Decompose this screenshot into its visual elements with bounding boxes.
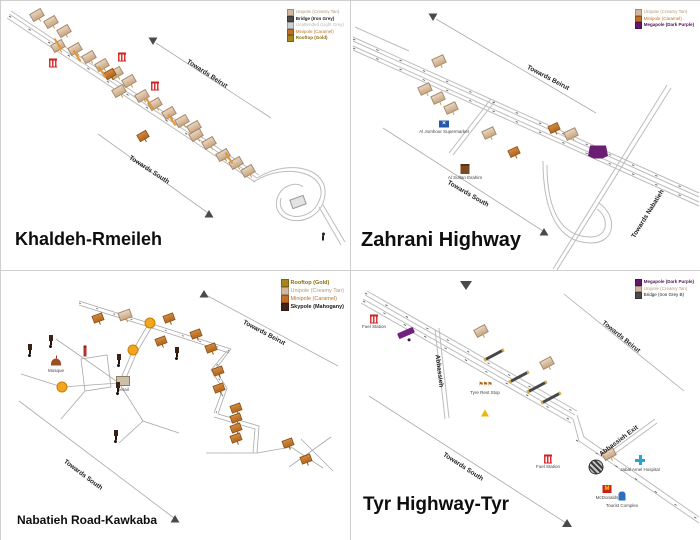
marker-label: Al Jomhour Supermarket [419,129,469,134]
minipole-marker [299,453,312,464]
megapole-h-marker [397,327,415,339]
marker-label: Tyre Rest Stop [470,390,500,395]
unipole-marker [240,164,256,178]
unipole-marker [443,101,459,115]
station-marker [118,53,126,62]
unipole-marker [56,24,72,38]
panel-tyr-highway-tyr: Fuel StationFuel Station⚑⚑⚑Tyre Rest Sto… [351,271,700,540]
legend-label: Minipole (Caramel) [291,295,337,303]
tourist-marker [619,492,626,501]
marker-label: McDonalds [596,495,619,500]
legend-label: Megapole (Dark Purple) [644,22,694,29]
minipole-marker [507,146,520,158]
marker-label: Fuel Station [362,324,386,329]
minipole-marker [154,335,167,346]
roundabout-orange-marker [57,382,68,393]
panel-title: Nabatieh Road-Kawkaba [17,513,157,527]
bridge-marker [484,349,505,362]
legend-label: Unipole (Creamy Tan) [291,287,344,295]
panel-title: Tyr Highway-Tyr [363,494,509,516]
direction-label: Towards Nabatieh [630,189,665,240]
shop-marker [461,164,470,174]
unipole-marker [563,127,579,141]
legend-label: Rooftop (Gold) [296,35,328,42]
legend-swatch [635,292,642,299]
legend-item: Megapole (Dark Purple) [635,22,694,29]
minipole-marker [229,432,242,443]
legend: Rooftop (Gold)Unipole (Creamy Tan)Minipo… [281,279,344,311]
flags-marker: ⚑⚑⚑ [478,382,491,388]
legend-swatch [281,295,289,303]
unipole-marker [431,54,447,68]
direction-label: Abbassieh [434,354,445,387]
skypole-marker [114,430,118,436]
legend-item: Skypole (Mahogany) [281,303,344,311]
legend-label: Rooftop (Gold) [291,279,330,287]
station-marker [370,315,378,324]
legend-swatch [635,22,642,29]
legend-item: Rooftop (Gold) [287,35,344,42]
flags-glyph: ⚑⚑⚑ [478,382,491,388]
marker-label: Tourist Complex [606,503,638,508]
direction-label: Towards Beirut [601,320,642,355]
direction-label: Towards Beirut [242,319,287,347]
supermarket-marker: ✕ [439,121,449,128]
minipole-marker [212,382,225,393]
roundabout-orange-marker [128,345,139,356]
hospital-marker [635,455,645,465]
supermarket-glyph: ✕ [439,121,449,128]
marker-label: Al Sultan Ibrahim [448,175,482,180]
marker-layer: MosqueSerailTowards BeirutTowards South [1,271,350,540]
legend-item: Unipole (Creamy Tan) [281,287,344,295]
direction-label: Towards Beirut [185,58,228,89]
unipole-marker [29,8,45,22]
legend: Unipole (Creamy Tan)Minipole (Caramel)Me… [635,9,694,29]
unipole-marker [539,356,555,370]
direction-label: Towards South [128,154,171,185]
unipole-marker [81,50,97,64]
direction-label: Towards South [446,179,490,208]
unipole-marker [430,91,446,105]
unipole-marker [201,136,217,150]
legend: Megapole (Dark Purple)Unipole (Creamy Ta… [635,279,694,299]
unipole-marker [43,15,59,29]
legend-label: Skypole (Mahogany) [291,303,344,311]
warning-marker [481,410,489,417]
minipole-marker [229,422,242,433]
mosque-marker [51,359,61,366]
skypole-marker [28,344,32,350]
panel-nabatieh-road-kawkaba: MosqueSerailTowards BeirutTowards South … [1,271,350,540]
panel-khaldeh-rmeileh: Towards BeirutTowards South Unipole (Cre… [1,1,350,270]
skypole-marker [116,382,120,388]
station-marker [151,82,159,91]
roundabout-orange-marker [145,318,156,329]
unipole-marker [117,309,132,322]
megapole-marker [588,146,608,159]
minipole-marker [189,328,202,339]
mcdonalds-glyph: M [603,485,612,493]
unipole-marker [473,324,489,338]
legend-swatch [287,35,294,42]
bridge-marker [541,392,562,405]
panel-title: Zahrani Highway [361,229,521,252]
minipole-marker [281,437,294,448]
map-sheet: Towards BeirutTowards South Unipole (Cre… [0,0,700,540]
minipole-marker [162,312,175,323]
legend-item: Bridge (Iron Grey B) [635,292,694,299]
marker-label: Jabal Amel Hospital [620,467,660,472]
skypole-marker [175,347,179,353]
minipole-marker [136,130,150,142]
panel-zahrani-highway: ✕Al Jomhour SupermarketAl Sultan Ibrahim… [351,1,700,270]
legend-swatch [281,279,289,287]
person-marker [322,236,324,241]
legend-swatch [281,287,289,295]
minaret-marker [84,346,87,357]
bridge-marker [527,381,548,394]
marker-label: Fuel Station [536,464,560,469]
station-marker [49,59,57,68]
unipole-marker [417,82,433,96]
minipole-marker [229,412,242,423]
direction-label: Abbassieh Exit [598,424,639,458]
marker-label: Mosque [48,368,64,373]
legend-label: Bridge (Iron Grey B) [644,292,684,299]
roundabout-dark-marker [589,460,604,475]
skypole-marker [49,335,53,341]
minipole-marker [204,342,217,353]
direction-label: Towards South [62,458,103,492]
minipole-marker [547,122,560,134]
station-marker [544,455,552,464]
mcdonalds-marker: M [603,485,612,493]
legend-item: Minipole (Caramel) [281,295,344,303]
direction-label: Towards Beirut [526,64,571,92]
minipole-marker [211,365,224,376]
minipole-marker [91,312,104,323]
panel-title: Khaldeh-Rmeileh [15,229,162,250]
bridge-marker [509,371,530,384]
direction-label: Towards South [442,451,485,482]
legend: Unipole (Creamy Tan)Bridge (Iron Grey)Un… [287,9,344,42]
skypole-marker [117,354,121,360]
unipole-marker [481,126,497,140]
building-marker [289,195,307,210]
minipole-marker [229,402,242,413]
legend-swatch [281,303,289,311]
legend-item: Rooftop (Gold) [281,279,344,287]
